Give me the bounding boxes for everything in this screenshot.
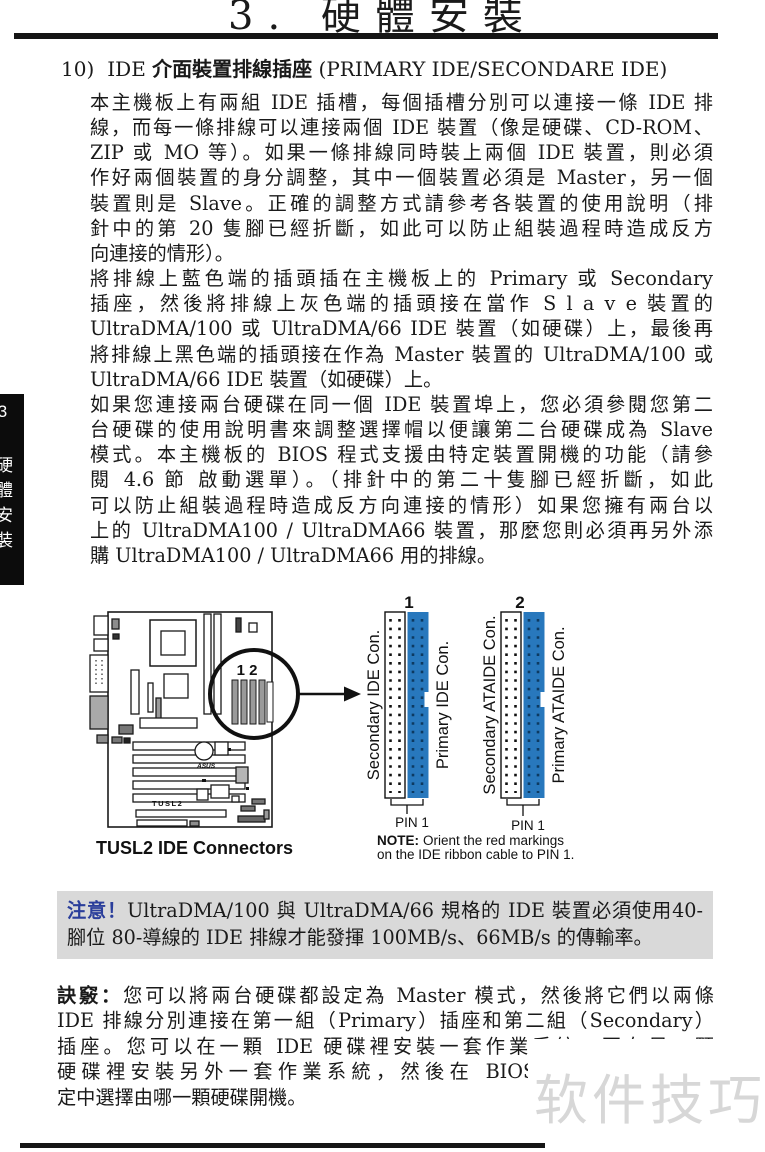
figure-note-bold: NOTE: (377, 833, 419, 848)
group-number: 2 (515, 593, 524, 612)
secondary-ide-label: Secondary IDE Con. (365, 630, 383, 780)
chapter-side-tab-label: 3 硬體安裝 (0, 402, 15, 556)
figure-note-line2: on the IDE ribbon cable to PIN 1. (377, 847, 574, 862)
primary-ataide-label: Primary ATAIDE Con. (550, 626, 568, 783)
text-line: 台硬碟的使用說明書來調整選擇帽以便讓第二台硬碟成為 Slave (90, 417, 713, 442)
text-line: 向連接的情形）。 (90, 241, 713, 266)
heading-post: (PRIMARY IDE/SECONDARE IDE) (312, 57, 667, 81)
body-paragraphs: 本主機板上有兩組 IDE 插槽，每個插槽分別可以連接一條 IDE 排 線，而每一… (90, 90, 713, 568)
figure-note-line1: Orient the red markings (423, 833, 564, 848)
ide-connectors-figure: 1 2 TUSL2 ASUS TUSL2 IDE Connectors 1 PI… (0, 588, 765, 880)
notice-line-1: 注意！UltraDMA/100 與 UltraDMA/66 規格的 IDE 裝置… (67, 897, 703, 924)
group-number: 1 (404, 593, 413, 612)
heading-pre: IDE (107, 57, 152, 81)
notice-box: 注意！UltraDMA/100 與 UltraDMA/66 規格的 IDE 裝置… (57, 891, 713, 959)
watermark: 软件技巧 (534, 1056, 765, 1135)
text-line: 線，而每一條排線可以連接兩個 IDE 裝置（像是硬碟、CD-ROM、 (90, 115, 713, 140)
section-heading: 10)IDE 介面裝置排線插座 (PRIMARY IDE/SECONDARE I… (61, 53, 667, 82)
figure-note: NOTE: Orient the red markings on the IDE… (377, 833, 574, 862)
connector-group-2: 2 PIN 1 Secondary ATAIDE Con. Primary AT… (481, 593, 568, 833)
text-line: ZIP 或 MO 等）。如果一條排線同時裝上兩個 IDE 裝置，則必須 (90, 140, 713, 165)
secondary-ide-connector (385, 612, 405, 798)
notice-label: 注意！ (67, 899, 127, 922)
text-line: 針中的第 20 隻腳已經折斷，如此可以防止組裝過程時造成反方 (90, 216, 713, 241)
pin1-label: PIN 1 (395, 815, 429, 830)
secondary-ataide-label: Secondary ATAIDE Con. (481, 615, 499, 794)
text-line: UltraDMA/100 或 UltraDMA/66 IDE 裝置（如硬碟）上，… (90, 316, 713, 341)
text-line: 本主機板上有兩組 IDE 插槽，每個插槽分別可以連接一條 IDE 排 (90, 90, 713, 115)
chapter-side-tab: 3 硬體安裝 (0, 394, 24, 585)
text-line: 閱 4.6 節 啟動選單）。（排針中的第二十隻腳已經折斷，如此 (90, 467, 713, 492)
paragraph-1: 本主機板上有兩組 IDE 插槽，每個插槽分別可以連接一條 IDE 排 線，而每一… (90, 90, 713, 266)
tip-text: 您可以將兩台硬碟都設定為 Master 模式，然後將它們以兩條 (123, 984, 714, 1007)
manual-page: 3. 硬體安裝 3 硬體安裝 10)IDE 介面裝置排線插座 (PRIMARY … (0, 0, 765, 1152)
board-model-label: TUSL2 (152, 799, 183, 808)
notice-line-2: 腳位 80-導線的 IDE 排線才能發揮 100MB/s、66MB/s 的傳輸率… (67, 924, 703, 951)
paragraph-3: 如果您連接兩台硬碟在同一個 IDE 裝置埠上，您必須參閱您第二 台硬碟的使用說明… (90, 392, 713, 568)
text-line: 將排線上黑色端的插頭接在作為 Master 裝置的 UltraDMA/100 或 (90, 342, 713, 367)
text-line: 裝置則是 Slave。正確的調整方式請參考各裝置的使用說明（排 (90, 191, 713, 216)
section-number: 10) (61, 57, 94, 81)
paragraph-2: 將排線上藍色端的插頭插在主機板上的 Primary 或 Secondary 插座… (90, 266, 713, 392)
pin1-label: PIN 1 (511, 818, 545, 833)
top-rule (14, 33, 718, 39)
pointer-arrow (297, 687, 361, 702)
magnifier-label: 1 2 (237, 662, 258, 679)
primary-ide-label: Primary IDE Con. (434, 641, 452, 769)
magnified-ide-slots (232, 680, 273, 724)
asus-logo: ASUS (196, 763, 216, 770)
bottom-rule (20, 1143, 545, 1148)
board-caption: TUSL2 IDE Connectors (96, 838, 293, 858)
heading-bold: 介面裝置排線插座 (152, 57, 312, 81)
tip-line-1: 訣竅：您可以將兩台硬碟都設定為 Master 模式，然後將它們以兩條 (57, 983, 714, 1008)
text-line: 如果您連接兩台硬碟在同一個 IDE 裝置埠上，您必須參閱您第二 (90, 392, 713, 417)
text-line: 作好兩個裝置的身分調整，其中一個裝置必須是 Master，另一個 (90, 165, 713, 190)
connector-group-1: 1 PIN 1 Secondary IDE Con. Primary IDE C… (365, 593, 452, 830)
text-line: 模式。本主機板的 BIOS 程式支援由特定裝置開機的功能（請參 (90, 442, 713, 467)
text-line: 上的 UltraDMA100 / UltraDMA66 裝置，那麼您則必須再另外… (90, 518, 713, 543)
text-line: 將排線上藍色端的插頭插在主機板上的 Primary 或 Secondary (90, 266, 713, 291)
secondary-ataide-connector (501, 612, 521, 798)
text-line: 購 UltraDMA100 / UltraDMA66 用的排線。 (90, 543, 713, 568)
tip-line-2: IDE 排線分別連接在第一組（Primary）插座和第二組（Secondary） (57, 1008, 714, 1033)
notice-text: UltraDMA/100 與 UltraDMA/66 規格的 IDE 裝置必須使… (127, 899, 703, 922)
text-line: UltraDMA/66 IDE 裝置（如硬碟）上。 (90, 367, 713, 392)
text-line: 可以防止組裝過程時造成反方向連接的情形）如果您擁有兩台以 (90, 493, 713, 518)
text-line: 插座，然後將排線上灰色端的插頭接在當作 S l a v e 裝置的 (90, 291, 713, 316)
tip-label: 訣竅： (57, 984, 123, 1007)
